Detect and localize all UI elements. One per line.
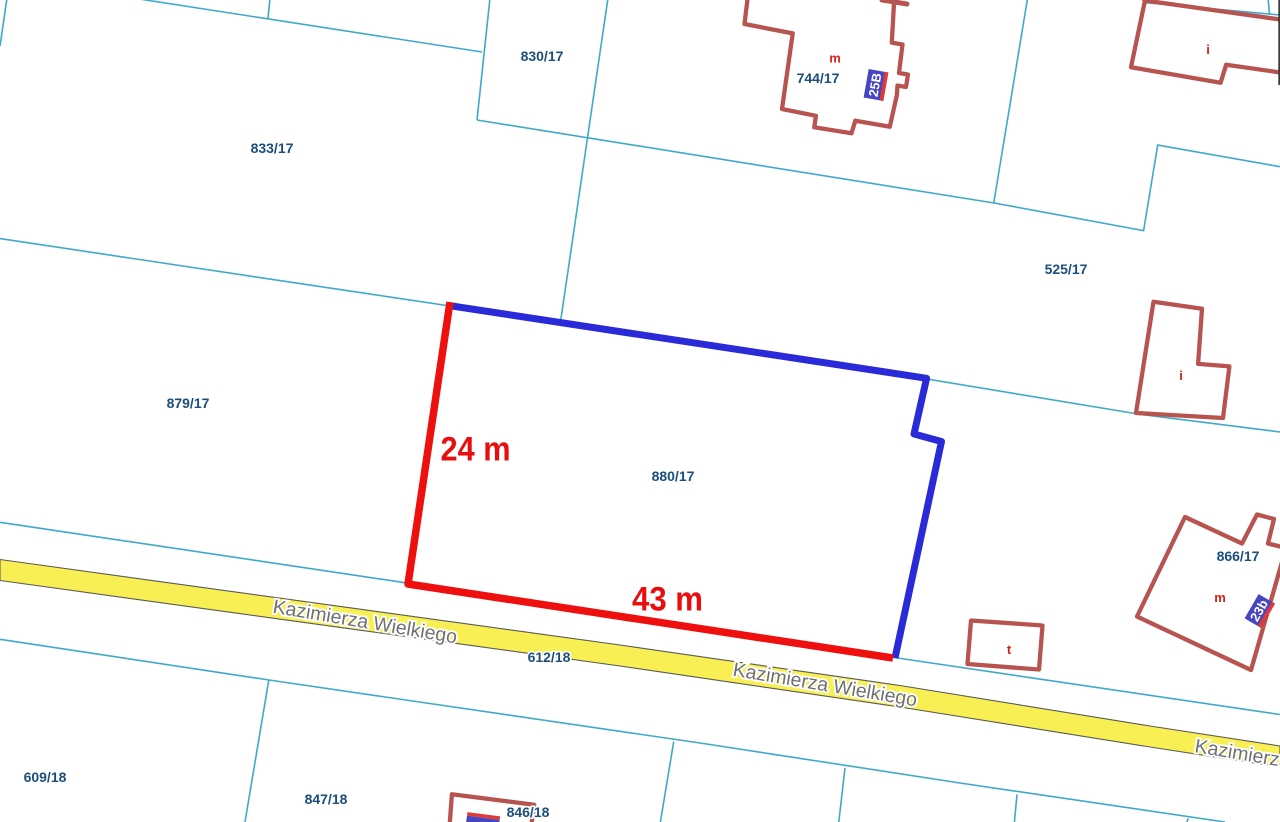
svg-text:43 m: 43 m xyxy=(632,581,703,619)
svg-text:24 m: 24 m xyxy=(441,431,511,469)
svg-text:833/17: 833/17 xyxy=(251,140,294,156)
svg-text:879/17: 879/17 xyxy=(167,395,210,411)
svg-text:880/17: 880/17 xyxy=(652,468,695,484)
svg-text:846/18: 846/18 xyxy=(507,804,550,820)
svg-text:i: i xyxy=(1179,368,1183,383)
svg-text:866/17: 866/17 xyxy=(1217,548,1260,564)
svg-text:847/18: 847/18 xyxy=(305,791,348,807)
svg-text:i: i xyxy=(1206,42,1210,57)
svg-text:525/17: 525/17 xyxy=(1045,261,1088,277)
svg-text:744/17: 744/17 xyxy=(797,70,840,86)
svg-text:m: m xyxy=(829,51,841,66)
svg-text:830/17: 830/17 xyxy=(521,48,564,64)
svg-text:609/18: 609/18 xyxy=(24,769,67,785)
svg-text:m: m xyxy=(1214,590,1226,605)
svg-text:612/18: 612/18 xyxy=(528,649,571,665)
svg-text:t: t xyxy=(1007,642,1012,657)
